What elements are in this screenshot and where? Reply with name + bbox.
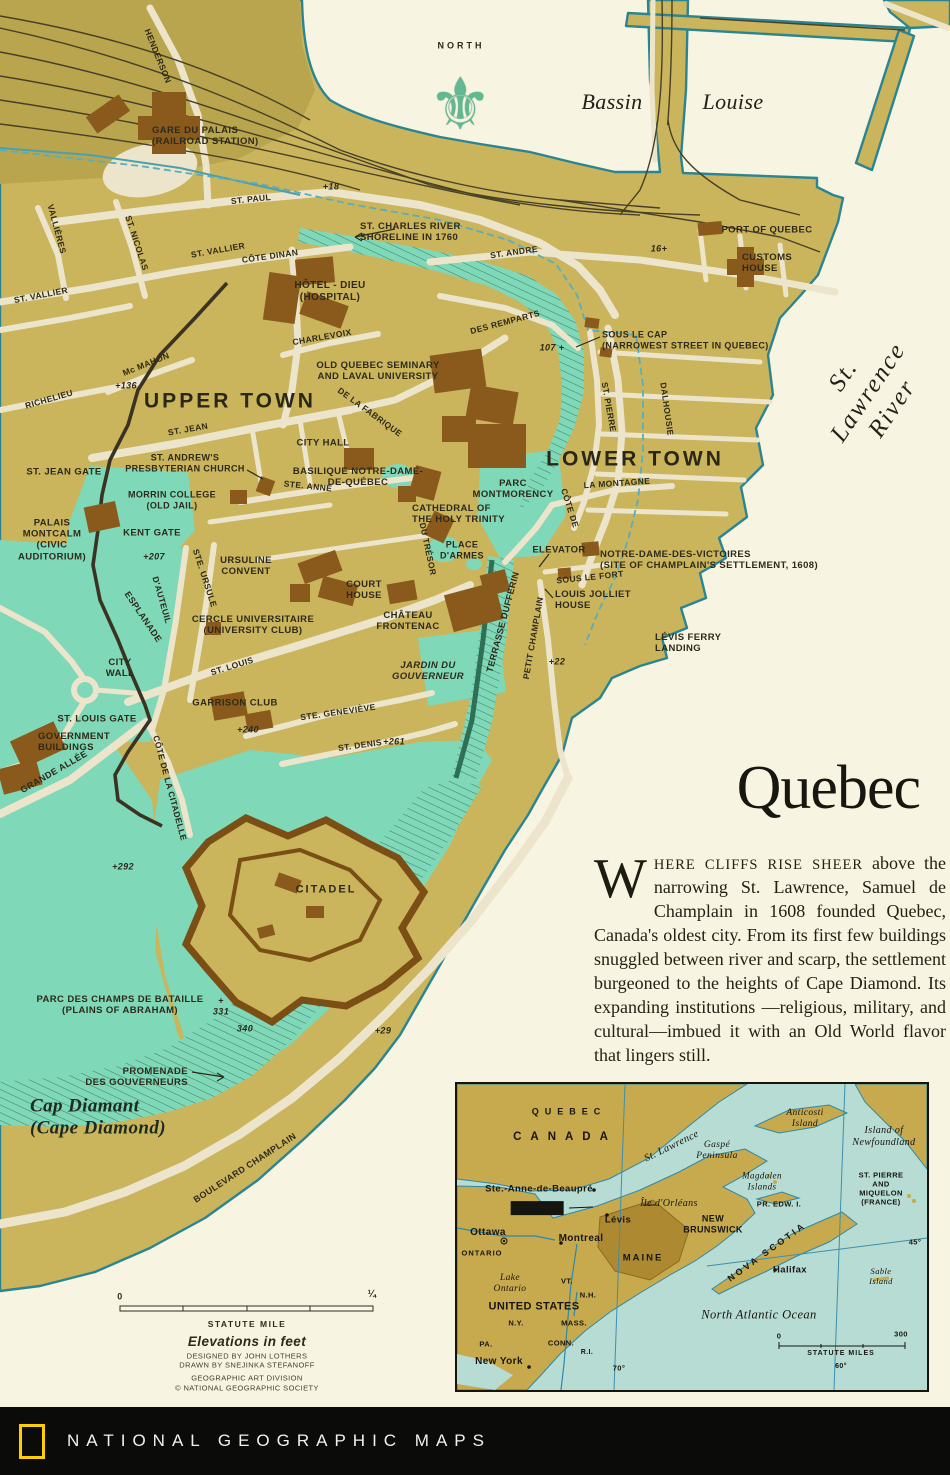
north-fleur-de-lis-icon: ⚜ [428,58,488,153]
region-inset-map: QUEBECCANADASt. LawrenceGaspé PeninsulaA… [455,1082,929,1392]
lead-smallcaps: HERE CLIFFS RISE SHEER [654,857,863,873]
article-paragraph: WHERE CLIFFS RISE SHEER above the narrow… [594,852,946,1067]
footer-brand: NATIONAL GEOGRAPHIC MAPS [67,1431,491,1451]
quebec-city-map: ⚜ NORTHBassinLouiseSt. Lawrence RiverHEN… [0,0,950,1407]
dropcap: W [594,852,654,902]
natgeo-logo-icon [19,1424,45,1459]
inset-svg [457,1084,927,1390]
scale-bar [120,1306,373,1311]
footer-bar: NATIONAL GEOGRAPHIC MAPS [0,1407,950,1475]
natgeo-quebec-map-page: { "palette": { "land": "#cab45c", "land2… [0,0,950,1475]
page-title: Quebec [590,757,920,819]
